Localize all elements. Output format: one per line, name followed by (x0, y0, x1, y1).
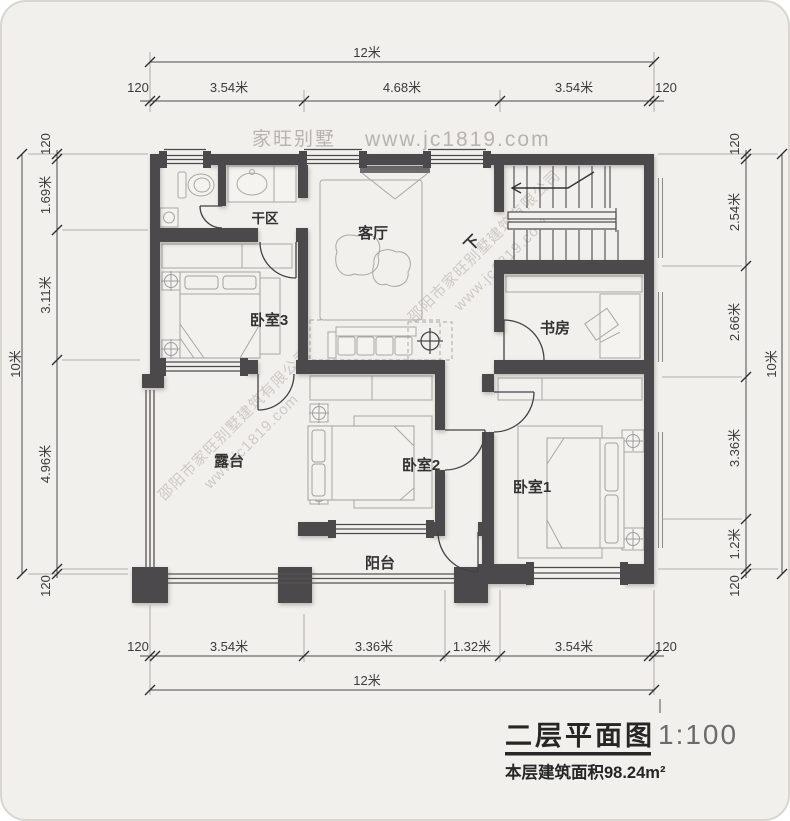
title-underline (505, 752, 651, 756)
bedroom1-label: 卧室1 (513, 478, 551, 496)
terrace-label: 露台 (214, 452, 244, 470)
dim-top-seg: 3.54米 (210, 80, 248, 95)
dim-top-seg: 120 (127, 80, 149, 95)
sheet-title: 二层平面图 (505, 721, 655, 751)
dim-left-seg: 1.69米 (38, 176, 53, 214)
scale-label: 1:100 (658, 719, 738, 750)
window (299, 150, 367, 169)
dim-left-total: 10米 (8, 350, 23, 377)
door (200, 206, 222, 228)
dry-area-label: 干区 (252, 211, 279, 226)
diagonal-watermark-1: 邵阳市家旺别墅建筑有限公司 www.jc1819.com (405, 167, 581, 343)
dim-right-total: 10米 (764, 350, 779, 377)
dim-right-seg: 2.66米 (727, 303, 742, 341)
window (159, 150, 211, 169)
dim-left-seg: 4.96米 (38, 445, 53, 483)
cabinet (498, 378, 542, 400)
bookshelf (506, 276, 642, 292)
toilet (178, 172, 214, 198)
column (132, 567, 168, 603)
dim-left-seg: 120 (38, 575, 53, 597)
header-site-watermark: www.jc1819.com (364, 128, 551, 151)
tv (360, 166, 430, 199)
column (454, 567, 488, 603)
header-watermark: 家旺别墅 www.jc1819.com (252, 128, 551, 151)
dim-left-seg: 3.11米 (38, 276, 53, 313)
study-furniture (506, 276, 642, 358)
balcony-label: 阳台 (365, 554, 395, 572)
bed (180, 272, 260, 358)
header-brand-watermark: 家旺别墅 (252, 128, 336, 150)
door (445, 430, 485, 470)
watermark-company: 邵阳市家旺别墅建筑有限公司 (155, 345, 314, 504)
door (260, 242, 296, 278)
dim-top-total: 12米 (353, 45, 380, 60)
bedroom2-furniture (308, 376, 432, 508)
study-label: 书房 (540, 319, 570, 337)
dim-bottom-seg: 3.54米 (555, 639, 593, 654)
door (438, 532, 478, 572)
dim-left-seg: 120 (38, 133, 53, 155)
dim-bottom-seg: 3.54米 (210, 639, 248, 654)
floor-plan-sheet: 家旺别墅 www.jc1819.com 邵阳市家旺别墅建筑有限公司 www.jc… (0, 0, 790, 821)
bed (308, 426, 414, 500)
floor-plan-drawing: 家旺别墅 www.jc1819.com 邵阳市家旺别墅建筑有限公司 www.jc… (2, 2, 790, 821)
exterior-ledge (659, 178, 663, 548)
area-note: 本层建筑面积98.24m² (505, 762, 666, 782)
window (526, 562, 628, 585)
dim-bottom-total: 12米 (353, 673, 380, 688)
dim-right-seg: 2.54米 (727, 193, 742, 231)
dimensions-top: 12米 120 3.54米 4.68米 3.54米 120 (127, 45, 677, 112)
dimensions-bottom: 120 3.54米 3.36米 1.32米 3.54米 120 12米 (127, 590, 677, 695)
window (328, 520, 434, 538)
bed (547, 438, 624, 548)
dim-right-seg: 1.2米 (727, 528, 742, 559)
dim-bottom-seg: 1.32米 (453, 639, 491, 654)
dim-top-seg: 3.54米 (555, 80, 593, 95)
dim-top-seg: 120 (655, 80, 677, 95)
dim-bottom-seg: 3.36米 (355, 639, 393, 654)
dim-bottom-seg: 120 (655, 639, 677, 654)
rug (320, 180, 422, 320)
dim-right-seg: 120 (727, 133, 742, 155)
dim-top-seg: 4.68米 (383, 80, 421, 95)
window (158, 358, 248, 376)
living-room-label: 客厅 (357, 224, 388, 242)
dim-right-seg: 120 (727, 575, 742, 597)
window (423, 150, 491, 169)
living-room-furniture (310, 166, 452, 360)
title-block: 二层平面图 1:100 本层建筑面积98.24m² (505, 699, 738, 782)
vanity-sink (228, 166, 296, 202)
column (278, 567, 312, 603)
dimensions-right: 120 2.54米 2.66米 3.36米 1.2米 120 10米 (658, 133, 787, 597)
dimensions-left: 120 1.69米 3.11米 4.96米 120 10米 (8, 133, 148, 597)
bedroom1-furniture (498, 378, 644, 558)
washing-machine (160, 208, 178, 227)
bedroom2-label: 卧室2 (402, 456, 440, 474)
dim-bottom-seg: 120 (127, 639, 149, 654)
door (504, 320, 544, 360)
bedroom3-label: 卧室3 (250, 311, 288, 329)
desk (600, 294, 640, 358)
dim-right-seg: 3.36米 (727, 429, 742, 467)
terrace-railing (146, 390, 154, 568)
bedroom3-furniture (161, 244, 292, 359)
